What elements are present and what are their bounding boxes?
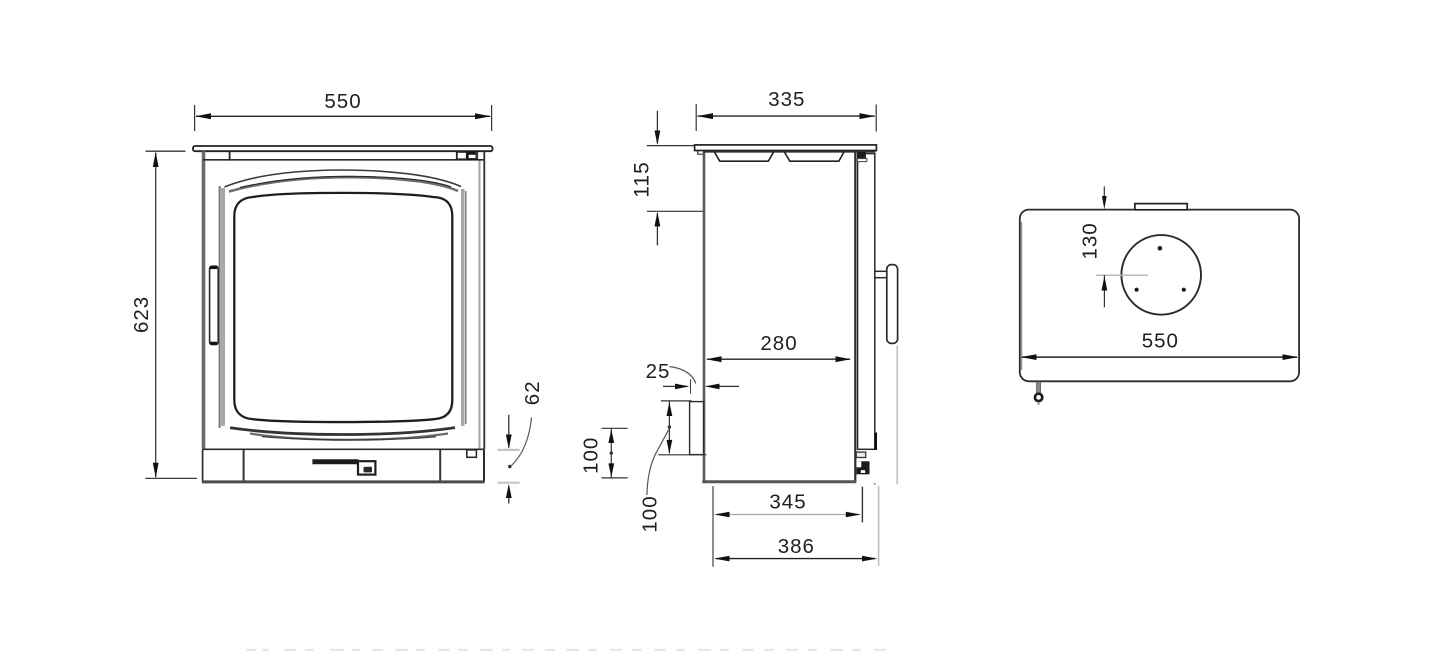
svg-text:25: 25 [646,360,671,383]
svg-text:550: 550 [324,90,361,113]
svg-text:100: 100 [639,495,662,532]
svg-text:386: 386 [778,535,815,558]
svg-text:100: 100 [579,437,602,474]
svg-text:115: 115 [630,161,653,197]
svg-text:345: 345 [769,491,806,514]
svg-text:335: 335 [768,88,805,111]
svg-text:280: 280 [760,332,797,355]
svg-text:623: 623 [130,296,153,333]
svg-text:130: 130 [1078,222,1101,259]
svg-text:62: 62 [521,380,544,405]
svg-text:550: 550 [1142,330,1179,353]
